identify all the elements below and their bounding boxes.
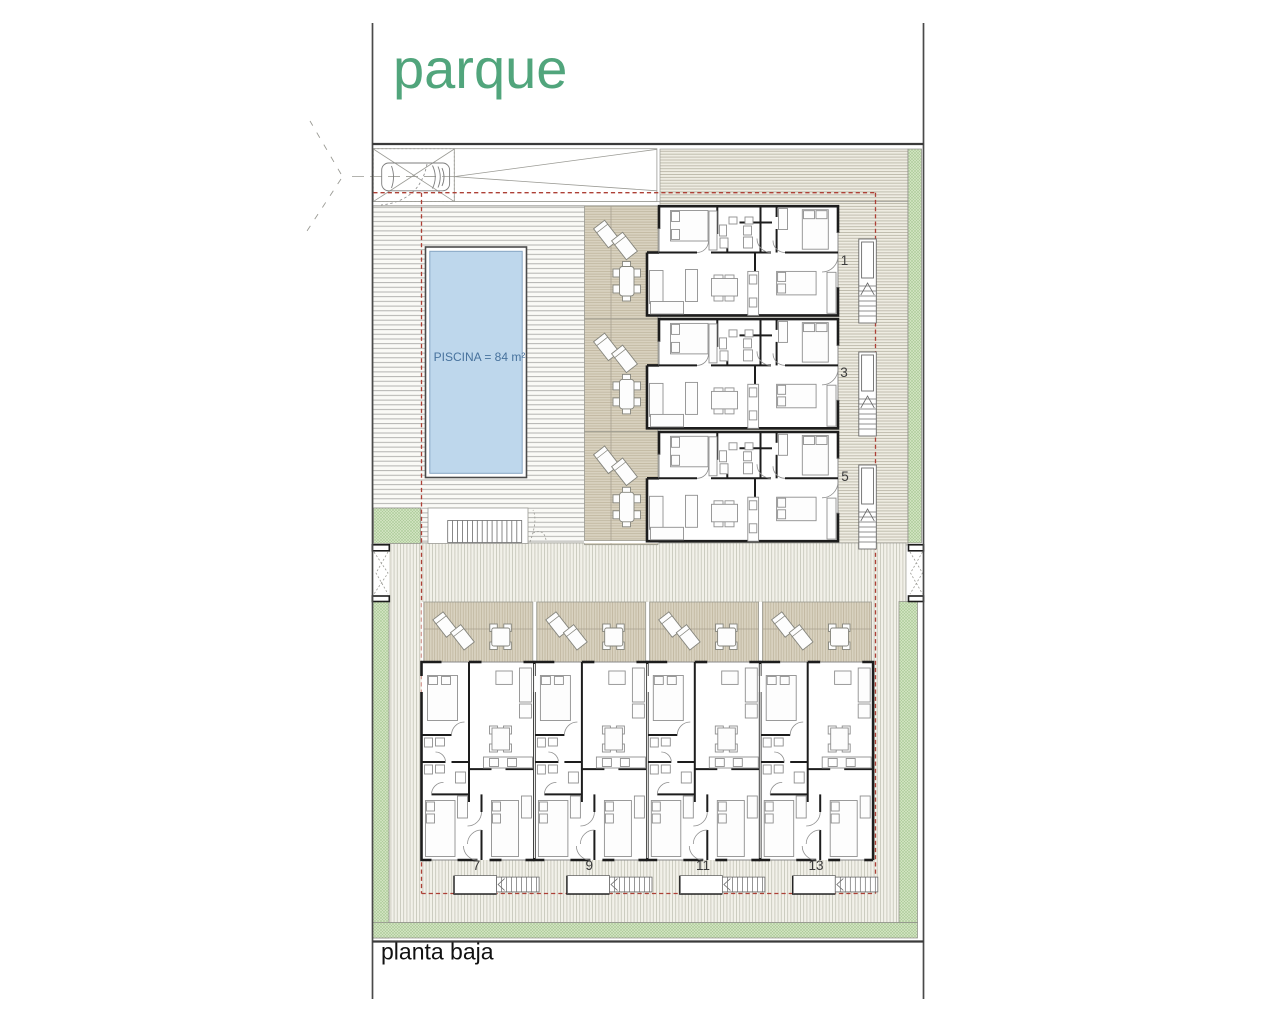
svg-text:13: 13 [808,858,823,873]
svg-text:1: 1 [841,253,849,268]
svg-text:11: 11 [696,858,710,873]
svg-text:parque: parque [393,37,567,100]
svg-text:9: 9 [586,858,594,873]
svg-text:3: 3 [840,365,848,380]
svg-text:5: 5 [841,469,849,484]
svg-text:7: 7 [473,858,481,873]
svg-text:planta baja: planta baja [381,939,494,965]
svg-text:PISCINA = 84 m²: PISCINA = 84 m² [434,350,526,364]
